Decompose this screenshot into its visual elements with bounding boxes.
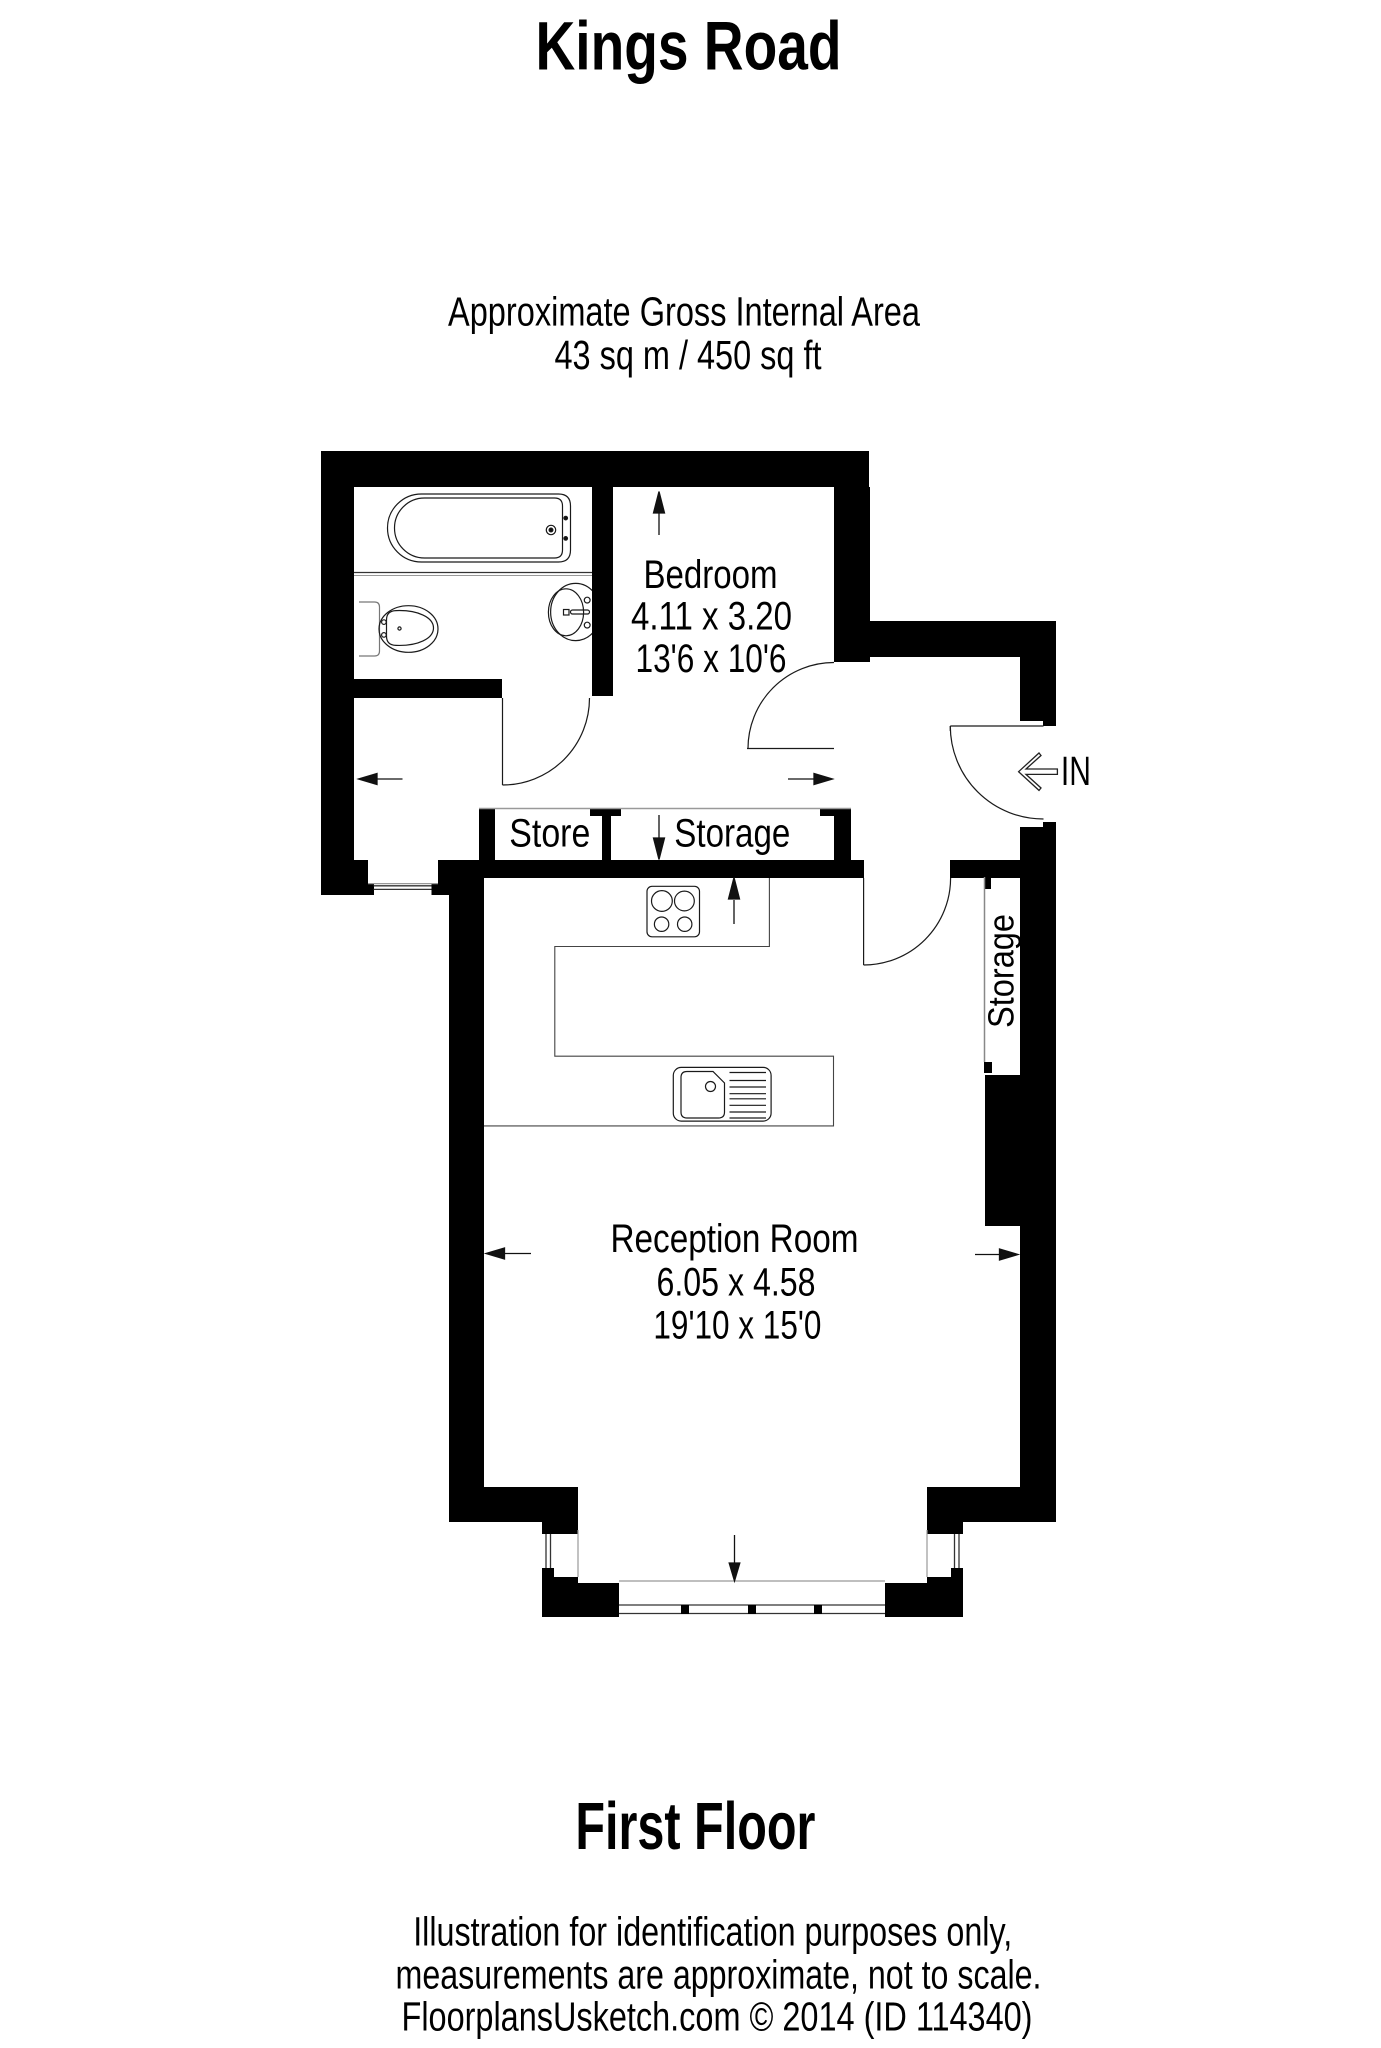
svg-text:19'10 x 15'0: 19'10 x 15'0 bbox=[653, 1304, 821, 1348]
svg-text:Illustration for identificatio: Illustration for identification purposes… bbox=[413, 1909, 1012, 1955]
svg-text:13'6 x 10'6: 13'6 x 10'6 bbox=[636, 637, 787, 681]
svg-text:Storage: Storage bbox=[674, 812, 790, 856]
svg-text:measurements are approximate,: measurements are approximate, not to sca… bbox=[396, 1952, 1042, 1998]
svg-text:6.05 x 4.58: 6.05 x 4.58 bbox=[657, 1261, 816, 1305]
svg-text:Store: Store bbox=[509, 812, 590, 856]
svg-text:Reception Room: Reception Room bbox=[611, 1217, 859, 1261]
svg-text:Bedroom: Bedroom bbox=[644, 553, 778, 597]
svg-text:43 sq m / 450 sq ft: 43 sq m / 450 sq ft bbox=[555, 332, 822, 378]
svg-text:Kings Road: Kings Road bbox=[536, 8, 842, 85]
svg-text:Approximate Gross Internal Are: Approximate Gross Internal Area bbox=[448, 289, 920, 335]
svg-text:Storage: Storage bbox=[981, 914, 1022, 1028]
svg-text:First Floor: First Floor bbox=[575, 1789, 815, 1864]
svg-text:IN: IN bbox=[1061, 748, 1091, 794]
svg-text:FloorplansUsketch.com © 2014 (: FloorplansUsketch.com © 2014 (ID 114340) bbox=[402, 1994, 1033, 2040]
svg-text:4.11 x 3.20: 4.11 x 3.20 bbox=[631, 595, 792, 639]
